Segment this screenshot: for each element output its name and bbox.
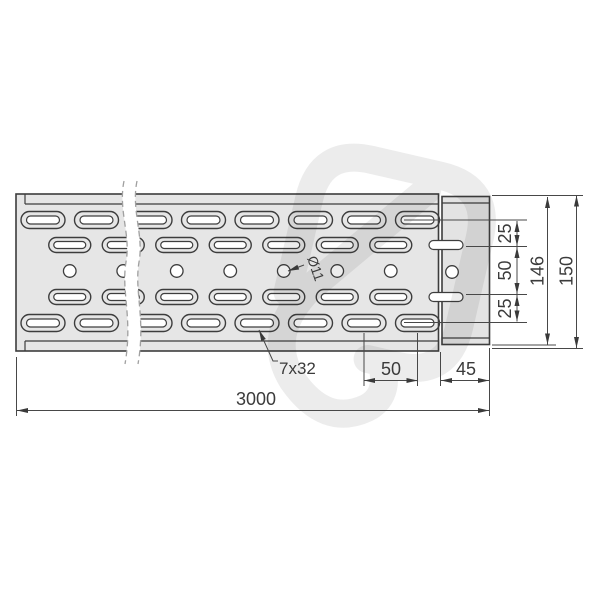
dim-150-label: 150 [557,256,577,286]
dim-25-bottom-label: 25 [495,298,515,318]
dim-146-label: 146 [528,256,548,286]
connector-tab-top [429,241,463,250]
label-7x32: 7x32 [279,359,316,378]
dim-50-bottom-label: 50 [381,359,401,379]
end-hole [446,266,459,279]
technical-drawing: 3000 50 45 25 50 25 146 150 7x32 Ø11 [0,0,600,600]
dim-25-top-label: 25 [495,223,515,243]
dim-3000-label: 3000 [236,389,276,409]
dim-50-right-label: 50 [495,260,515,280]
dim-45-label: 45 [456,359,476,379]
technical-drawing-page: 3000 50 45 25 50 25 146 150 7x32 Ø11 [0,0,600,600]
